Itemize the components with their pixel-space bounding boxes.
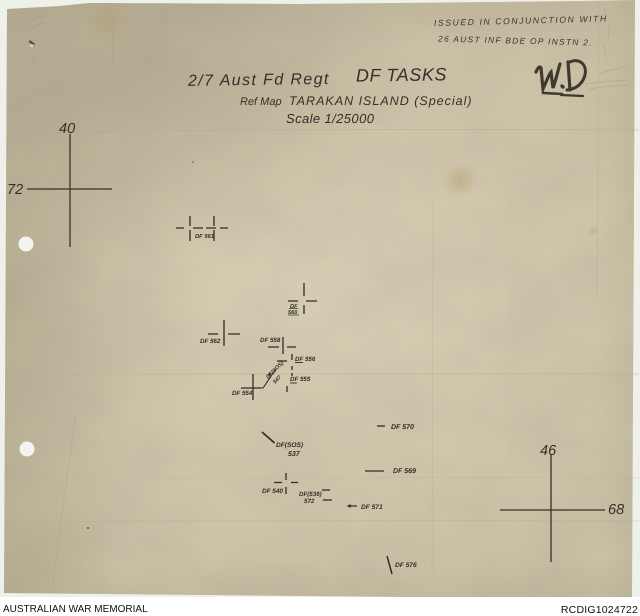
svg-text:DF 576: DF 576: [395, 562, 417, 569]
svg-text:TARAKAN ISLAND (Special): TARAKAN ISLAND (Special): [289, 94, 473, 108]
svg-text:68: 68: [608, 502, 624, 518]
svg-text:DF TASKS: DF TASKS: [356, 64, 447, 85]
svg-text:Scale 1/25000: Scale 1/25000: [286, 111, 375, 126]
svg-text:DF(536): DF(536): [299, 491, 322, 498]
svg-text:560: 560: [288, 310, 298, 316]
svg-text:2/7 Aust Fd Regt: 2/7 Aust Fd Regt: [187, 71, 330, 90]
svg-text:46: 46: [540, 443, 557, 459]
svg-text:DF 562: DF 562: [200, 338, 221, 345]
svg-text:72: 72: [7, 182, 23, 198]
svg-text:DF 540: DF 540: [262, 488, 283, 495]
svg-text:DF 555: DF 555: [290, 376, 311, 383]
svg-text:DF 558: DF 558: [260, 337, 281, 344]
svg-text:DF 556: DF 556: [295, 356, 316, 363]
svg-text:DF(SOS): DF(SOS): [276, 442, 303, 449]
svg-text:Ref Map: Ref Map: [240, 96, 282, 108]
svg-text:DF 570: DF 570: [391, 424, 414, 431]
svg-text:DF 561: DF 561: [195, 233, 214, 240]
svg-text:537: 537: [288, 451, 301, 458]
svg-text:40: 40: [59, 121, 75, 137]
svg-text:572: 572: [304, 498, 315, 505]
svg-text:DF 569: DF 569: [393, 468, 416, 475]
svg-text:DF 554: DF 554: [232, 390, 253, 397]
svg-text:DF 571: DF 571: [361, 504, 383, 511]
